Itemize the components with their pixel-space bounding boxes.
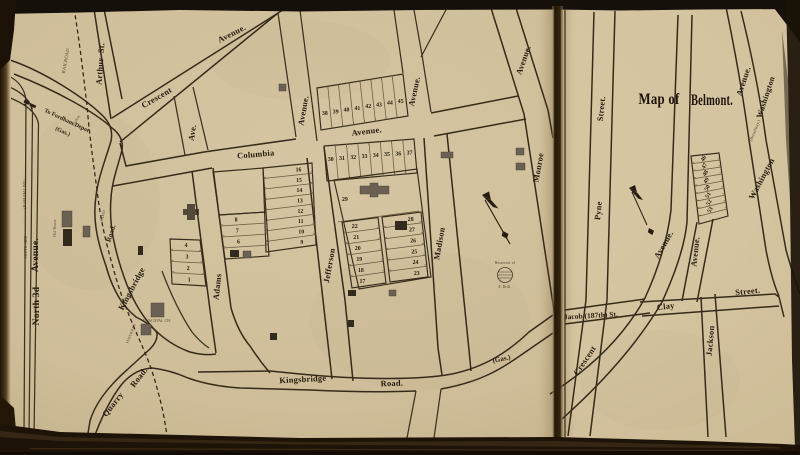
svg-text:7: 7 (236, 228, 239, 234)
svg-text:14: 14 (297, 188, 303, 194)
svg-text:44: 44 (387, 101, 393, 107)
svg-text:18: 18 (358, 268, 364, 274)
svg-text:21: 21 (353, 235, 359, 241)
svg-text:EPISCOPAL CH.: EPISCOPAL CH. (143, 319, 171, 323)
svg-text:1: 1 (188, 277, 191, 283)
svg-text:34: 34 (373, 153, 379, 159)
svg-text:Old House: Old House (53, 219, 57, 236)
svg-text:43: 43 (376, 102, 382, 108)
svg-text:35: 35 (384, 152, 390, 158)
svg-text:33: 33 (362, 154, 368, 160)
svg-text:45: 45 (398, 99, 404, 105)
svg-text:Road.: Road. (381, 379, 404, 389)
svg-text:4: 4 (185, 243, 188, 249)
svg-text:Avenue.: Avenue. (31, 238, 41, 272)
svg-text:SOUTH SIDE: SOUTH SIDE (24, 235, 28, 258)
svg-text:15: 15 (296, 178, 302, 184)
svg-text:36: 36 (395, 151, 401, 157)
svg-text:20: 20 (355, 246, 361, 252)
svg-text:Map of: Map of (639, 91, 680, 108)
svg-text:16: 16 (296, 168, 302, 174)
svg-text:North 3d: North 3d (32, 286, 42, 325)
svg-text:25: 25 (411, 249, 417, 255)
svg-text:19: 19 (356, 257, 362, 263)
svg-text:29: 29 (342, 197, 348, 203)
svg-text:23: 23 (414, 271, 420, 277)
svg-text:42: 42 (365, 104, 371, 110)
svg-text:17: 17 (360, 279, 366, 285)
svg-text:6: 6 (237, 239, 240, 245)
svg-text:26: 26 (410, 239, 416, 245)
svg-text:30: 30 (328, 157, 334, 163)
svg-text:37: 37 (407, 150, 413, 156)
svg-text:12: 12 (298, 209, 304, 215)
svg-text:Belmont.: Belmont. (691, 92, 733, 109)
svg-text:38: 38 (322, 111, 328, 117)
svg-text:(HARLEM LINE): (HARLEM LINE) (23, 179, 27, 209)
svg-text:28: 28 (408, 217, 414, 223)
svg-text:40: 40 (344, 108, 350, 114)
svg-text:31: 31 (339, 156, 345, 162)
svg-text:39: 39 (333, 109, 339, 115)
svg-text:9: 9 (300, 240, 303, 246)
svg-text:41: 41 (355, 106, 361, 112)
svg-text:24: 24 (413, 260, 419, 266)
svg-text:11: 11 (298, 219, 304, 225)
svg-text:3: 3 (186, 255, 189, 261)
svg-text:8: 8 (235, 217, 238, 223)
svg-text:Reservoir of: Reservoir of (495, 261, 516, 265)
svg-text:27: 27 (409, 228, 415, 234)
svg-text:22: 22 (352, 224, 358, 230)
svg-text:2: 2 (187, 266, 190, 272)
svg-text:32: 32 (350, 155, 356, 161)
svg-text:13: 13 (297, 199, 303, 205)
svg-text:10: 10 (298, 230, 304, 236)
svg-text:F. Drill.: F. Drill. (499, 285, 512, 289)
